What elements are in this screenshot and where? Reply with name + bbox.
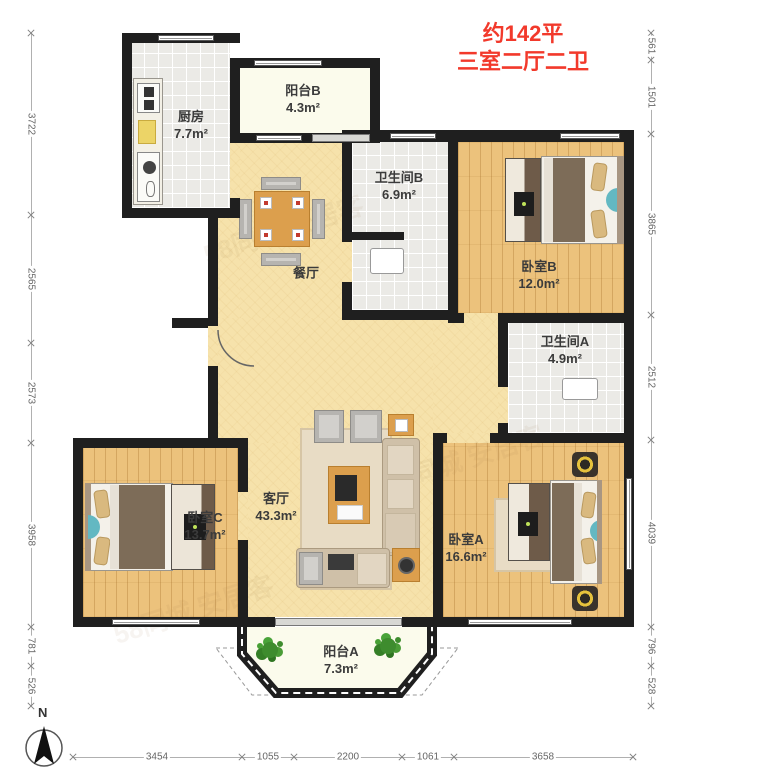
bed-blanket: [119, 485, 165, 569]
wall-segment: [433, 433, 447, 443]
dimension-tick: [398, 753, 407, 762]
wall-segment: [402, 617, 427, 627]
wall-partition: [352, 232, 404, 240]
dimension-label: 2512: [646, 364, 657, 390]
sofa-cushion: [387, 479, 414, 509]
bedroom-c-door-opening: [238, 492, 248, 540]
wall-segment: [122, 33, 132, 218]
wall-segment: [208, 366, 218, 448]
room-area: 12.0m²: [518, 276, 559, 293]
washer-icon: [370, 248, 404, 274]
bed-sheet: [544, 158, 553, 242]
sliding-door: [312, 134, 370, 142]
dimension-tick: [450, 753, 459, 762]
plate: [260, 197, 272, 209]
room-name: 厨房: [174, 109, 208, 126]
dimension-tick: [629, 753, 638, 762]
dimension-tick: [647, 130, 656, 139]
wall-segment: [498, 313, 508, 387]
dimension-tick: [647, 662, 656, 671]
sofa-cushion: [387, 445, 414, 475]
room-label-bath-a: 卫生间A 4.9m²: [541, 334, 589, 368]
entry-door-opening: [208, 326, 218, 366]
plant-icon: [380, 638, 396, 654]
room-label-dining: 餐厅: [293, 266, 319, 283]
cutting-board-icon: [138, 120, 156, 144]
dining-chair: [239, 199, 252, 239]
wall-segment: [448, 313, 464, 323]
compass-circle: [26, 730, 62, 766]
dimension-tick: [27, 662, 36, 671]
sofa-armchair: [299, 552, 323, 585]
dimension-label: 526: [26, 676, 37, 697]
wall-segment: [73, 448, 83, 627]
dimension-label: 781: [26, 636, 37, 657]
stove-icon: [137, 83, 160, 113]
window: [560, 133, 620, 139]
plan-title: 约142平 三室二厅二卫: [418, 20, 628, 76]
nightstand-icon: [572, 586, 598, 611]
dimension-label: 1501: [646, 84, 657, 110]
room-label-balcony-b: 阳台B 4.3m²: [285, 83, 320, 117]
room-name: 阳台B: [285, 83, 320, 100]
room-label-living: 客厅 43.3m²: [255, 491, 296, 525]
tv-icon: [514, 192, 534, 216]
dimension-label: 3958: [26, 522, 37, 548]
wall-segment: [208, 218, 218, 326]
dimension-label: 3658: [530, 752, 556, 763]
room-name: 卧室A: [445, 532, 486, 549]
dimension-tick: [647, 436, 656, 445]
wall-segment: [238, 448, 248, 492]
plate: [292, 197, 304, 209]
dimension-label: 2573: [26, 380, 37, 406]
headboard: [617, 156, 624, 244]
nightstand-icon: [572, 452, 598, 477]
sofa-icon: [296, 548, 390, 588]
side-table-icon: [388, 414, 414, 436]
wall-segment: [172, 318, 208, 328]
room-name: 卫生间B: [375, 170, 423, 187]
room-area: 7.7m²: [174, 126, 208, 143]
room-area: 43.3m²: [255, 508, 296, 525]
burner: [144, 100, 154, 110]
dining-chair: [261, 253, 301, 266]
room-label-bedroom-b: 卧室B 12.0m²: [518, 259, 559, 293]
wall-segment: [73, 438, 248, 448]
room-name: 卧室B: [518, 259, 559, 276]
sofa-table: [328, 554, 354, 570]
dimension-label: 1055: [255, 752, 281, 763]
bath-b-floor: [352, 142, 448, 310]
headboard: [597, 480, 602, 584]
dimension-tick: [27, 339, 36, 348]
wall-segment: [230, 198, 240, 218]
dimension-tick: [27, 29, 36, 38]
compass-north-label: N: [38, 705, 47, 720]
wall-segment: [230, 58, 240, 143]
sofa-cushion: [357, 553, 387, 585]
dimension-label: 3865: [646, 211, 657, 237]
dimension-label: 528: [646, 676, 657, 697]
room-area: 4.3m²: [285, 100, 320, 117]
dimension-tick: [27, 211, 36, 220]
plate: [260, 229, 272, 241]
room-name: 卫生间A: [541, 334, 589, 351]
table-pad: [337, 505, 363, 520]
room-area: 6.9m²: [375, 187, 423, 204]
coffee-table-icon: [328, 466, 370, 524]
dimension-label: 3454: [144, 752, 170, 763]
room-area: 4.9m²: [541, 351, 589, 368]
window: [112, 619, 200, 625]
dimension-tick: [647, 623, 656, 632]
room-label-bedroom-a: 卧室A 16.6m²: [445, 532, 486, 566]
bed-sheet: [574, 483, 582, 581]
wall-segment: [342, 310, 458, 320]
window: [390, 133, 436, 139]
dimension-label: 4039: [646, 520, 657, 546]
floorplan-canvas: 58同城 安居客 58同城 安居客 58同城 安居客: [0, 0, 774, 780]
plan-title-layout: 三室二厅二卫: [418, 48, 628, 76]
room-name: 餐厅: [293, 266, 319, 283]
faucet: [146, 181, 155, 197]
dimension-tick: [647, 311, 656, 320]
bathtub-icon: [562, 378, 598, 400]
dining-chair: [261, 177, 301, 190]
window: [626, 478, 632, 570]
tv-cabinet-icon: [392, 548, 420, 582]
armchair-icon: [350, 410, 382, 443]
wall-segment: [506, 313, 634, 323]
dimension-tick: [69, 753, 78, 762]
dimension-label: 561: [646, 36, 657, 57]
dimension-tick: [27, 702, 36, 711]
dining-chair: [312, 199, 325, 239]
plant-icon: [262, 642, 278, 658]
room-name: 卧室C: [184, 510, 225, 527]
wall-segment: [448, 142, 458, 313]
wall-segment: [342, 142, 352, 242]
wall-segment: [490, 433, 634, 443]
dimension-label: 2200: [335, 752, 361, 763]
window: [254, 60, 322, 66]
window: [256, 135, 302, 141]
room-name: 客厅: [255, 491, 296, 508]
wall-segment: [238, 540, 248, 627]
room-area: 7.3m²: [323, 661, 358, 678]
window: [468, 619, 572, 625]
dimension-tick: [647, 56, 656, 65]
dimension-tick: [238, 753, 247, 762]
wall-segment: [247, 617, 275, 627]
sink-basin: [143, 161, 156, 174]
wall-segment: [433, 443, 443, 627]
fan-icon: [398, 557, 415, 574]
dimension-label: 2565: [26, 266, 37, 292]
plate: [292, 229, 304, 241]
compass-north-icon: [16, 718, 72, 774]
window: [158, 35, 214, 41]
dimension-tick: [27, 623, 36, 632]
room-name: 阳台A: [323, 644, 358, 661]
dimension-tick: [647, 702, 656, 711]
room-area: 16.6m²: [445, 549, 486, 566]
armchair-icon: [314, 410, 344, 443]
bed-sheet: [110, 485, 119, 569]
bath-a-door-opening: [498, 387, 508, 423]
sink-icon: [137, 152, 160, 202]
bath-b-door-opening: [342, 242, 352, 282]
plan-title-area: 约142平: [418, 20, 628, 48]
dimension-label: 1061: [415, 752, 441, 763]
room-label-kitchen: 厨房 7.7m²: [174, 109, 208, 143]
bed-blanket: [552, 483, 574, 581]
hallway-floor: [433, 320, 498, 433]
sofa-chaise: [385, 513, 416, 553]
tv-icon: [518, 512, 538, 536]
burner: [144, 87, 154, 97]
wall-segment: [122, 208, 240, 218]
dimension-tick: [27, 439, 36, 448]
dimension-tick: [290, 753, 299, 762]
room-area: 13.7m²: [184, 527, 225, 544]
room-label-bedroom-c: 卧室C 13.7m²: [184, 510, 225, 544]
table-console: [335, 475, 357, 501]
dimension-label: 796: [646, 636, 657, 657]
compass-arrow: [34, 726, 54, 764]
sofa-icon: [382, 438, 420, 556]
bed-blanket: [553, 158, 585, 242]
sliding-door: [275, 618, 402, 626]
side-table-top: [395, 419, 408, 432]
room-label-bath-b: 卫生间B 6.9m²: [375, 170, 423, 204]
room-label-balcony-a: 阳台A 7.3m²: [323, 644, 358, 678]
dimension-label: 3722: [26, 111, 37, 137]
kitchen-door-opening: [230, 143, 240, 198]
